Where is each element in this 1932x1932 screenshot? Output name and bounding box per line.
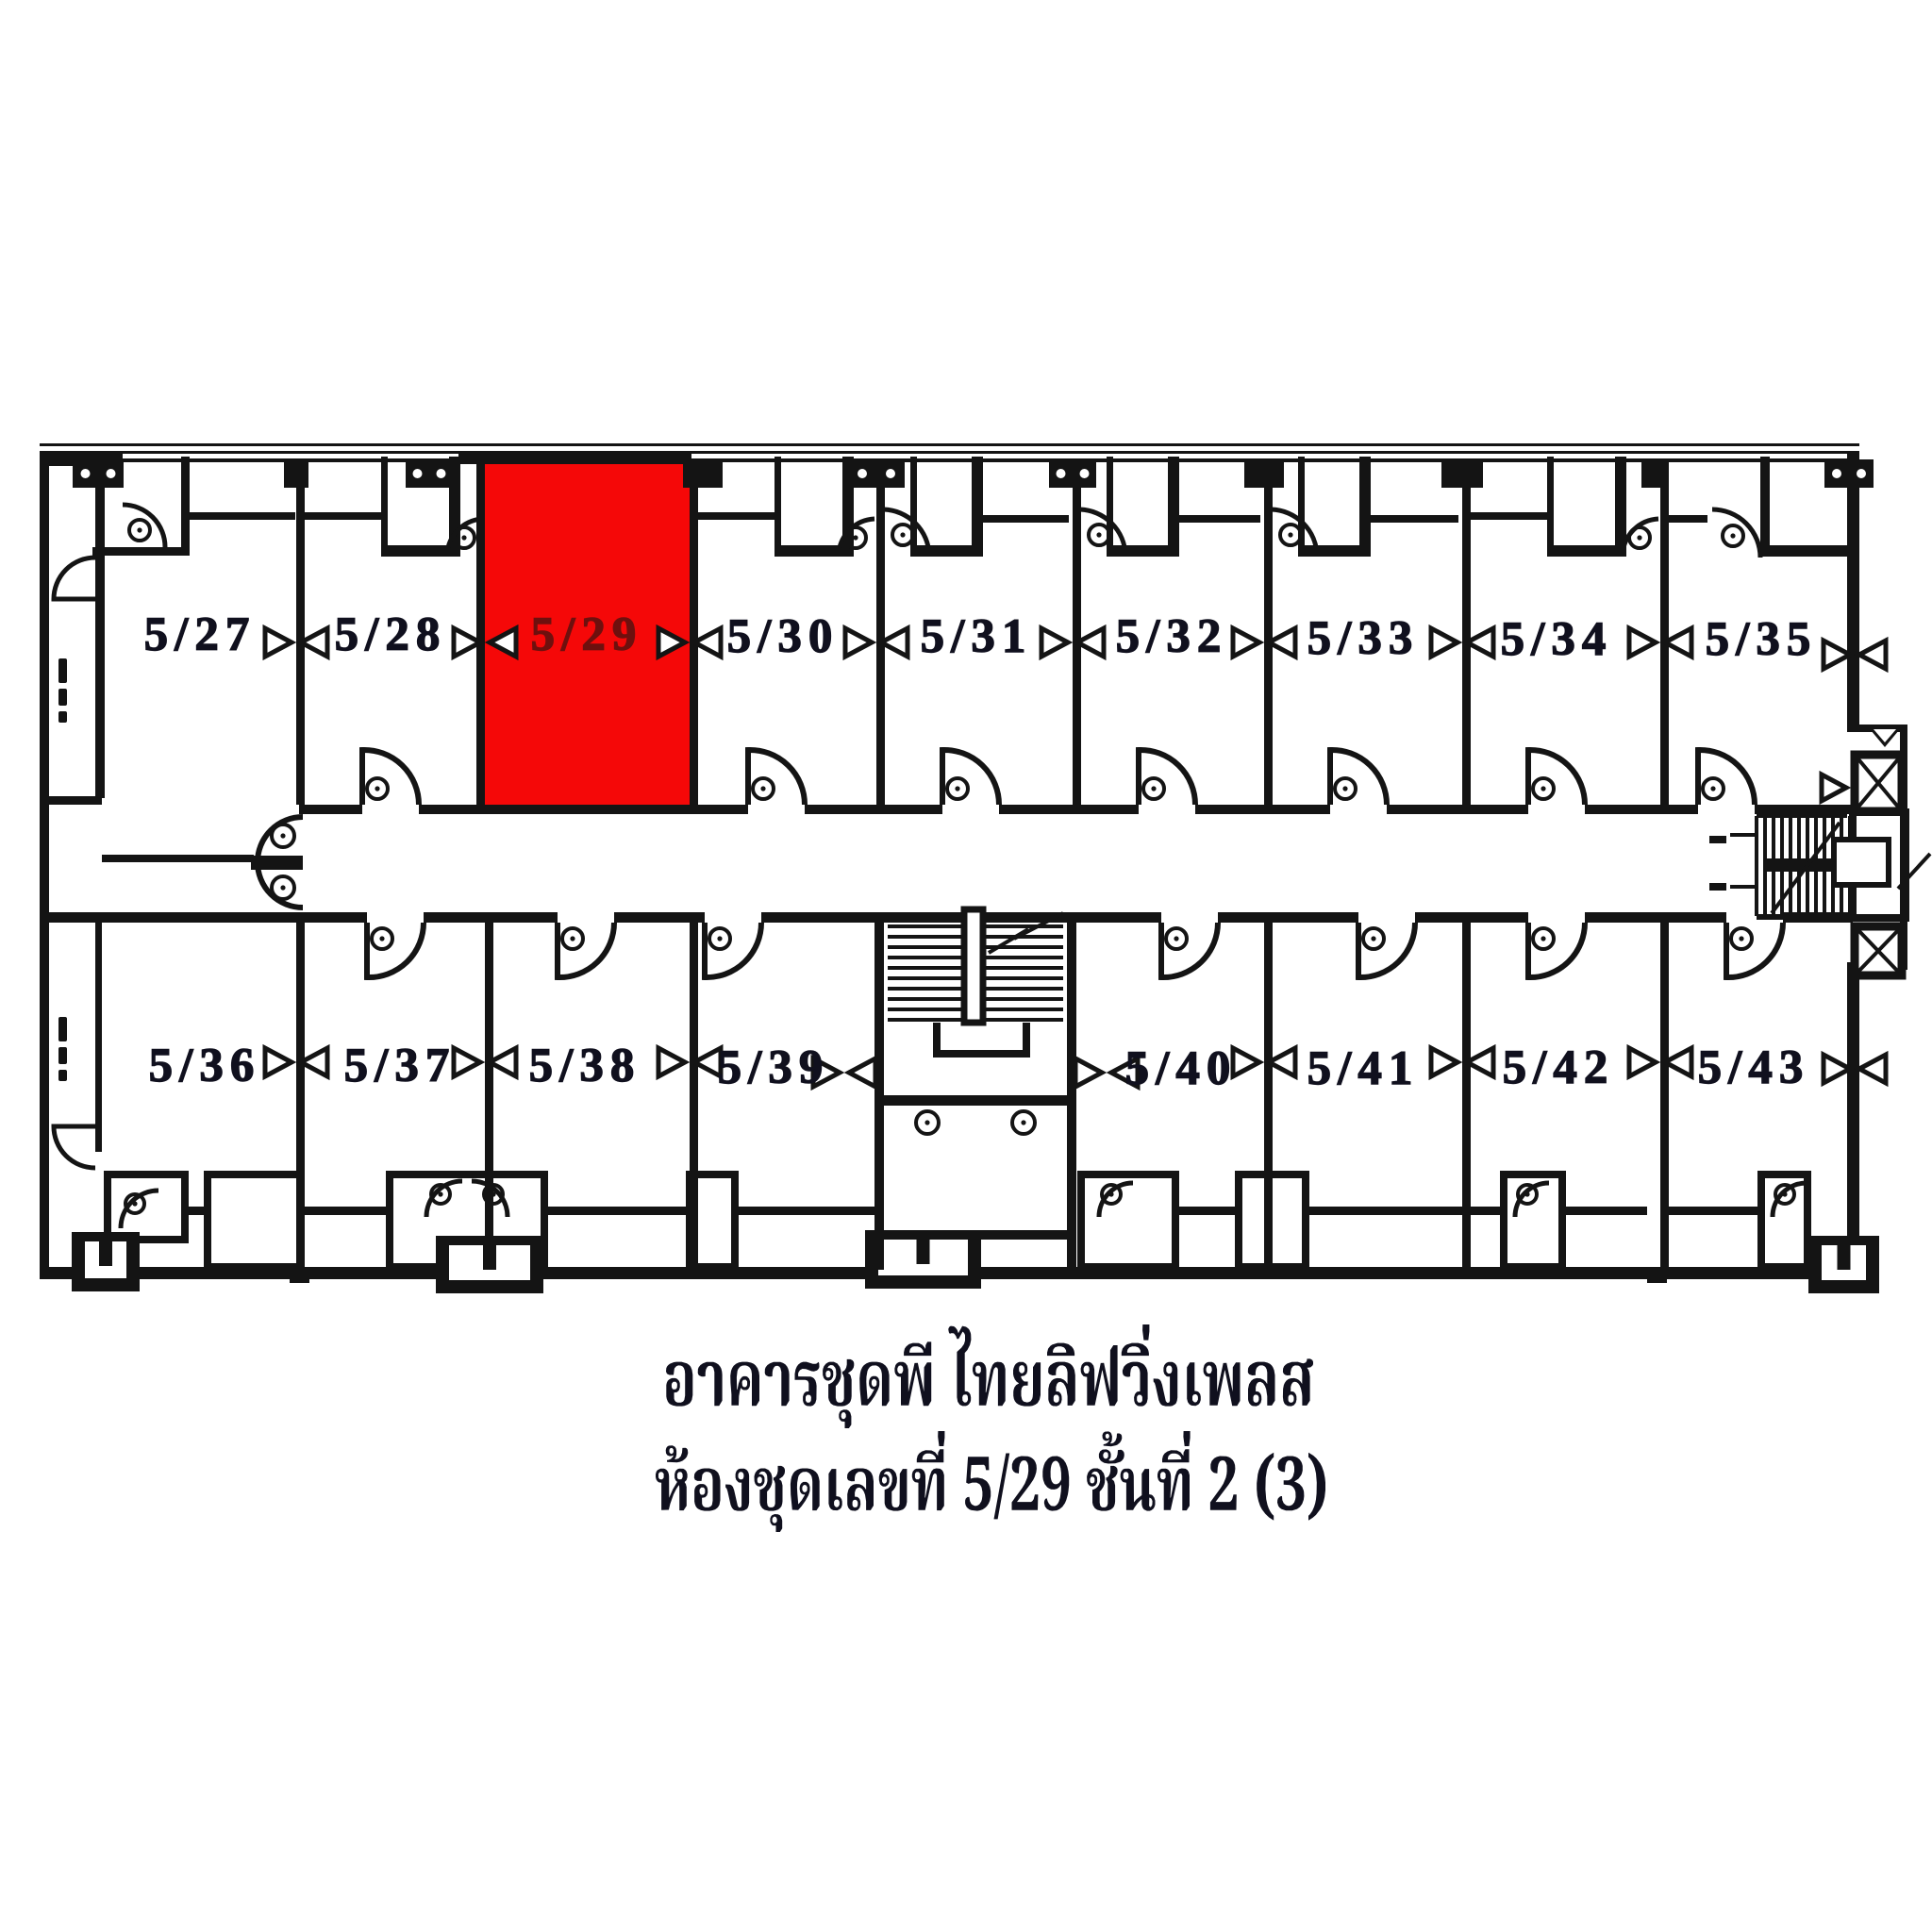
svg-text:5/29: 5/29: [531, 608, 643, 661]
svg-text:5/41: 5/41: [1307, 1042, 1420, 1095]
svg-text:5/38: 5/38: [529, 1040, 641, 1092]
svg-text:5/28: 5/28: [335, 608, 447, 661]
svg-text:5/42: 5/42: [1503, 1041, 1615, 1094]
svg-text:5/32: 5/32: [1116, 610, 1228, 663]
svg-text:5/30: 5/30: [727, 610, 840, 663]
svg-text:5/31: 5/31: [921, 610, 1033, 663]
svg-text:5/40: 5/40: [1125, 1042, 1238, 1095]
svg-text:5/34: 5/34: [1501, 613, 1613, 666]
svg-text:5/36: 5/36: [149, 1040, 261, 1092]
svg-text:5/35: 5/35: [1706, 613, 1818, 666]
svg-text:5/43: 5/43: [1698, 1041, 1810, 1094]
svg-text:5/39: 5/39: [718, 1041, 830, 1094]
svg-text:5/37: 5/37: [344, 1040, 457, 1092]
svg-text:5/33: 5/33: [1307, 612, 1420, 665]
svg-text:5/27: 5/27: [144, 608, 257, 661]
